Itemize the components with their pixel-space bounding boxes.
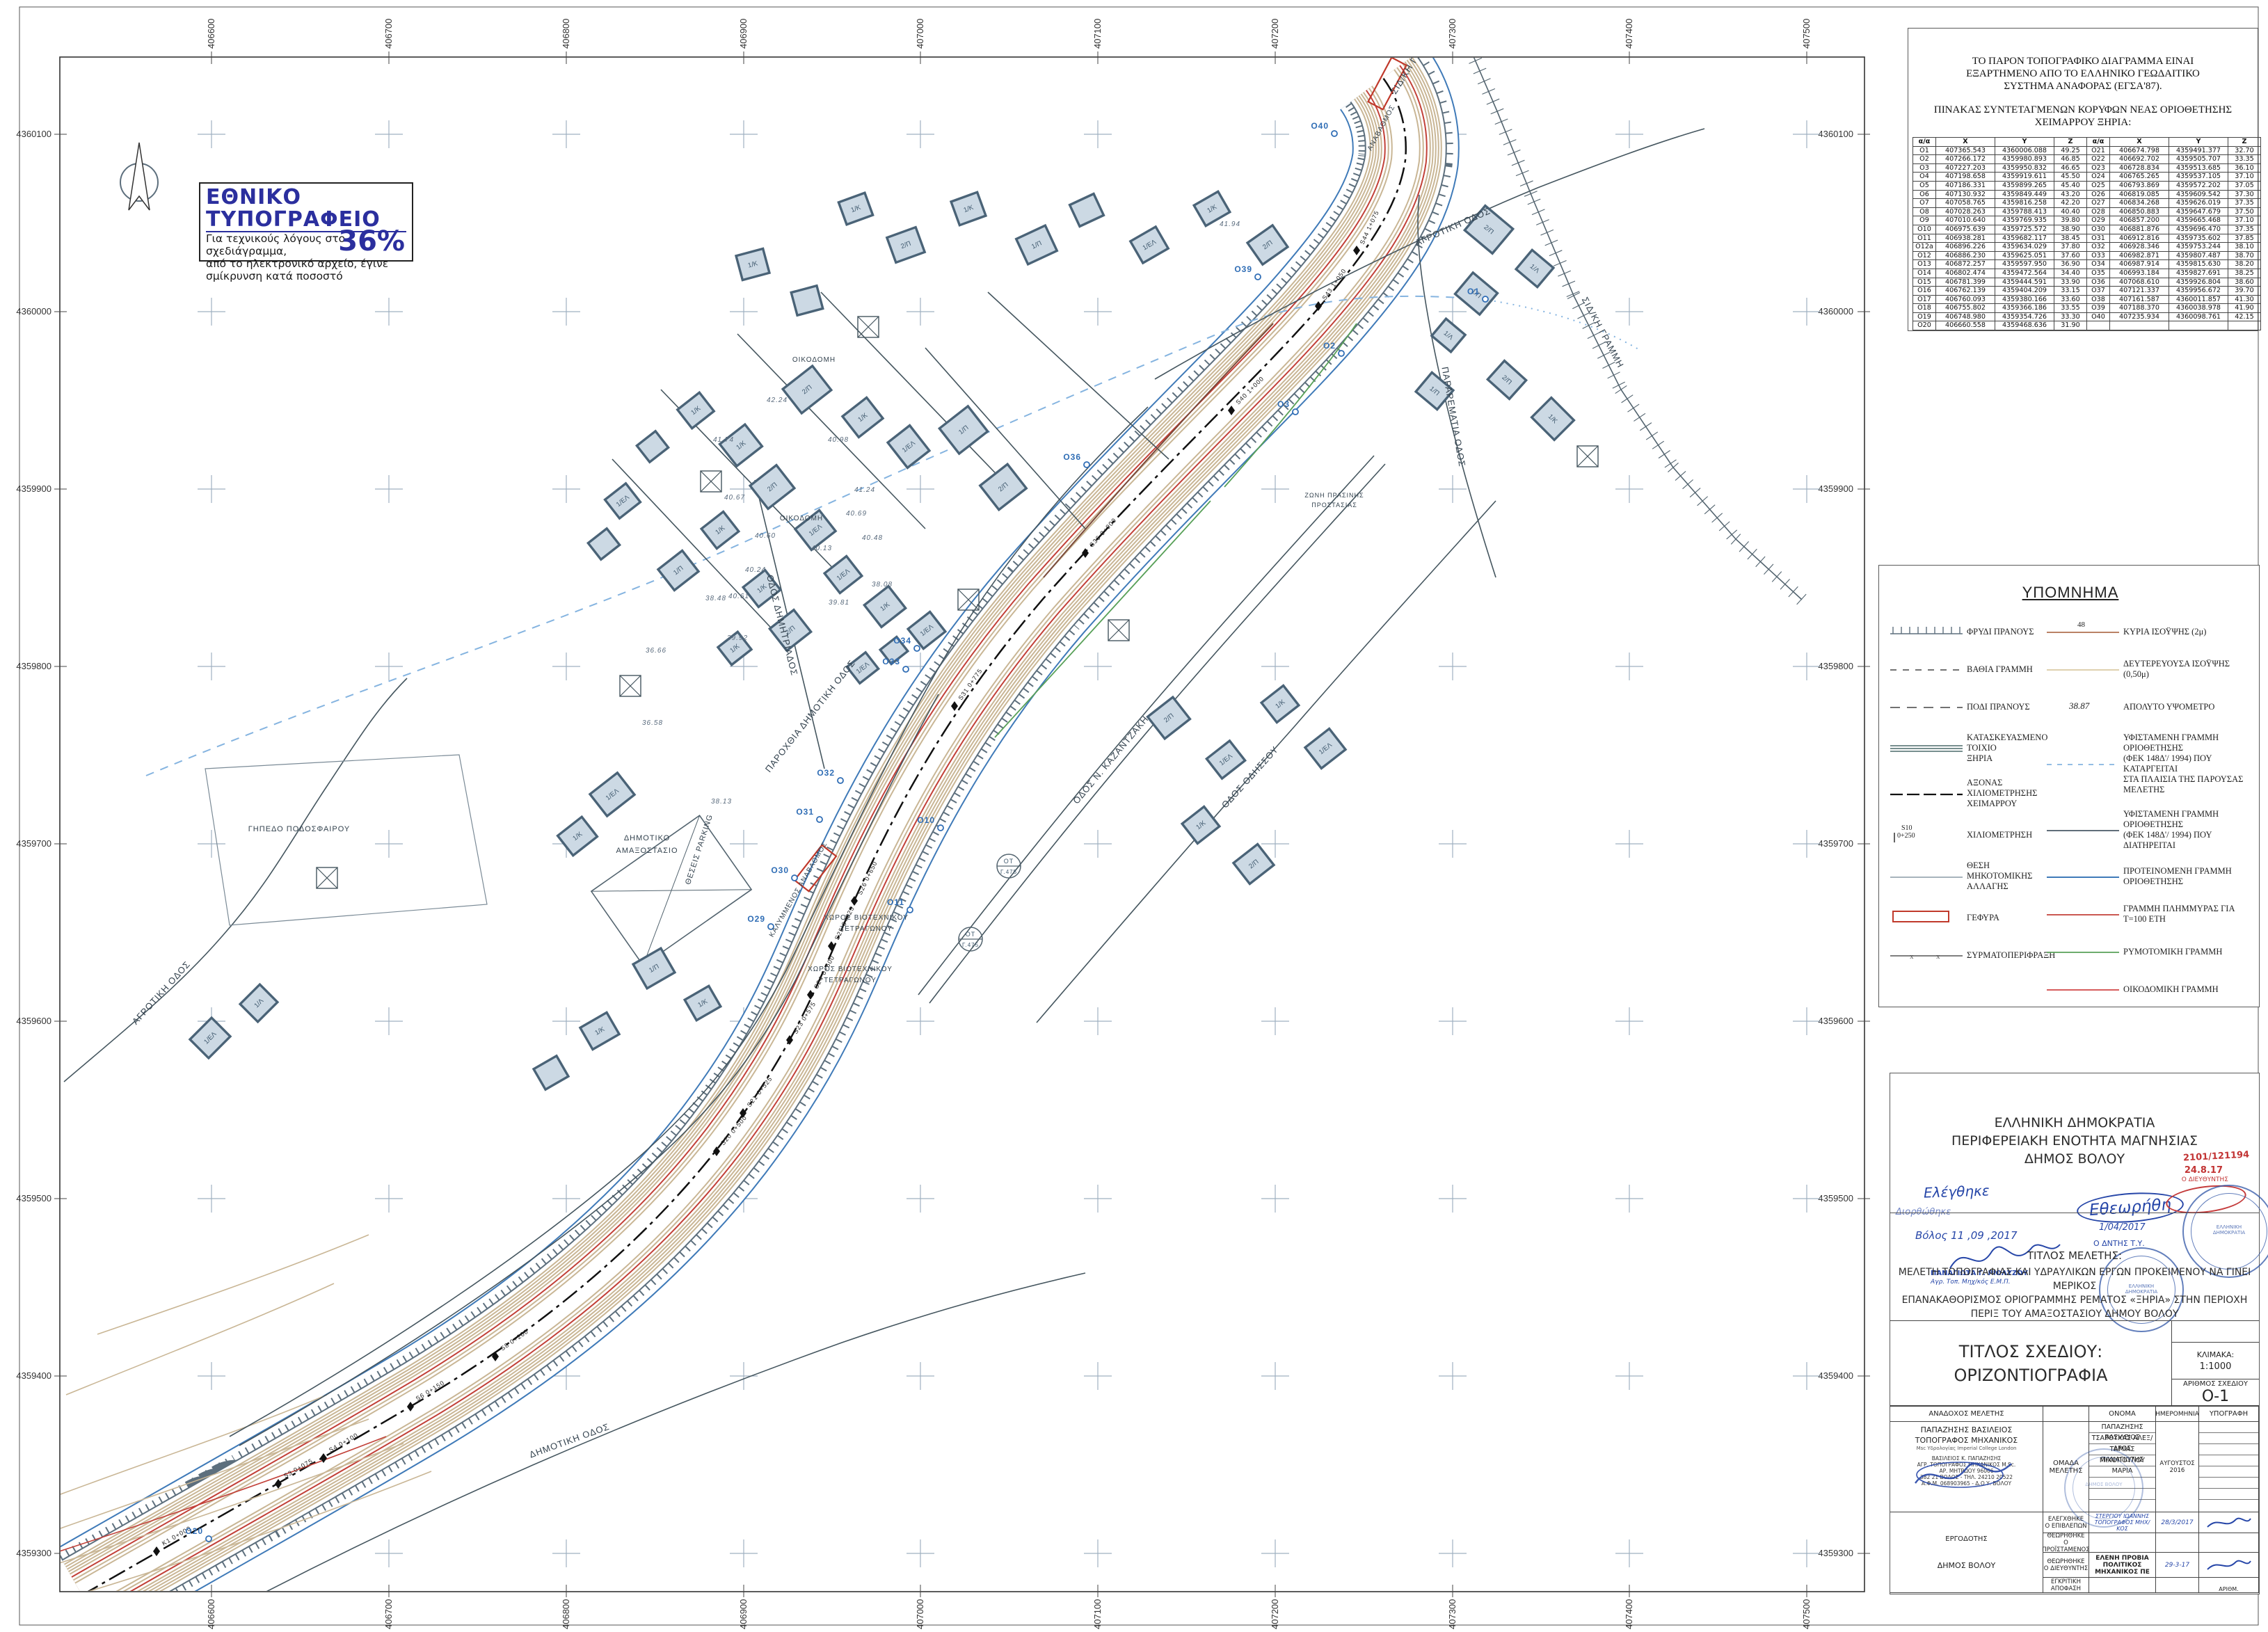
svg-text:38.87: 38.87	[2068, 701, 2090, 711]
map-label: ΓΗΠΕΔΟ ΠΟΔΟΣΦΑΙΡΟΥ	[248, 825, 350, 833]
map-text: 4359700	[1818, 838, 1853, 849]
map-label: ΠΑΡΑΡΕΜΑΤΙΑ ΟΔΟΣ	[1439, 366, 1467, 467]
svg-text:S10: S10	[1901, 824, 1912, 832]
approval-signature-cell: ΑΡΙΘΜ.	[2199, 1578, 2259, 1593]
red-date: 24.8.17	[2185, 1165, 2223, 1176]
approval-label-cell: ΘΕΩΡΗΘΗΚΕΟ ΠΡΟΪΣΤΑΜΕΝΟΣ	[2043, 1533, 2089, 1553]
map-label: 40.48	[862, 534, 883, 542]
map-text: 406900	[738, 19, 749, 49]
building-footprint: 1/ΕΛ	[908, 612, 945, 649]
map-label: ΤΕΤΡΑΓΩΝΟΥ	[840, 925, 893, 933]
legend-item: ΓΕΦΥΡΑ	[1889, 906, 2045, 929]
building-footprint: 1/Π	[658, 550, 698, 590]
coords-row: O8407028.2634359788.41340.40O28406850.88…	[1913, 207, 2261, 216]
building-footprint: 1/Κ	[951, 192, 986, 225]
building-footprint	[1070, 194, 1104, 227]
building-footprint: 1/ΕΛ	[190, 1018, 230, 1058]
legend-item: ΥΦΙΣΤΑΜΕΝΗ ΓΡΑΜΜΗ ΟΡΙΟΘΕΤΗΣΗΣ(ΦΕΚ 148Δ'/…	[2045, 733, 2244, 795]
map-label: 41.24	[854, 486, 875, 494]
building-footprint: 1/Λ	[1432, 319, 1465, 352]
approval-label-cell: ΘΕΩΡΗΘΗΚΕΟ ΔΙΕΥΘΥΝΤΗΣ	[2043, 1553, 2089, 1578]
legend-item: ΦΡΥΔΙ ΠΡΑΝΟΥΣ	[1889, 620, 2045, 643]
legend-item-label: ΒΑΘΙΑ ΓΡΑΜΜΗ	[1967, 664, 2033, 675]
coords-row: O6407130.9324359849.44943.20O26406819.08…	[1913, 190, 2261, 199]
map-text: 406700	[383, 19, 394, 49]
coords-row: O13406872.2574359597.95036.90O34406987.9…	[1913, 260, 2261, 269]
railway-tie	[1460, 38, 1473, 43]
map-label: 38.48	[705, 595, 726, 602]
coords-header-row: α/αXYZα/αXYZ	[1913, 138, 2261, 147]
boundary-point	[1483, 296, 1488, 302]
dash1-symbol-icon	[1889, 657, 1967, 678]
thin-symbol-icon	[1889, 865, 1967, 886]
name-header: ΟΝΟΜΑ	[2089, 1407, 2156, 1422]
building-footprint: 2/Π	[1487, 361, 1526, 399]
building-footprint: 1/Λ	[1516, 250, 1554, 287]
coords-row: O20406660.5584359468.63631.90	[1913, 321, 2261, 330]
coordinates-table: α/αXYZα/αXYZO1407365.5434360006.08849.25…	[1912, 137, 2261, 330]
coords-row: O4407198.6584359919.61145.50O24406765.26…	[1913, 173, 2261, 182]
legend-item: ΑΞΟΝΑΣΧΙΛΙΟΜΕΤΡΗΣΗΣΧΕΙΜΑΡΡΟΥ	[1889, 778, 2045, 809]
boundary-point	[817, 817, 822, 822]
building-footprint: 1/Κ	[720, 424, 762, 466]
building-footprint: 2/Π	[750, 465, 794, 509]
railway-tie	[1613, 382, 1625, 388]
drawing-sheet: 4066004066004067004067004068004068004069…	[0, 0, 2268, 1632]
org-line-2: ΠΕΡΙΦΕΡΕΙΑΚΗ ΕΝΟΤΗΤΑ ΜΑΓΝΗΣΙΑΣ	[1890, 1132, 2259, 1150]
drawing-title: ΟΡΙΖΟΝΤΙΟΓΡΑΦΙΑ	[1954, 1363, 2107, 1387]
map-label: 36.66	[646, 647, 666, 655]
round-stamp-faded: ΔΗΜΟΣ ΒΟΛΟΥ	[2064, 1448, 2143, 1528]
map-label: 40.69	[846, 510, 867, 518]
railway-tie	[1464, 48, 1477, 54]
divider	[1890, 1213, 2259, 1213]
drawing-number: Ο-1	[2202, 1388, 2229, 1405]
team-signatures-cell	[2199, 1422, 2259, 1512]
stamp-line3: σμίκρυνση κατά ποσοστό	[206, 270, 406, 282]
coords-row: O19406748.9804359354.72633.30O40407235.9…	[1913, 312, 2261, 321]
map-label: O1	[1467, 287, 1480, 296]
railway-tie	[1675, 471, 1686, 480]
building-footprint: 1/Κ	[864, 586, 905, 627]
map-text: 4359900	[1818, 483, 1853, 494]
legend-item: ΓΡΑΜΜΗ ΠΛΗΜΜΥΡΑΣ ΓΙΑ Τ=100 ΕΤΗ	[2045, 902, 2244, 926]
map-label: O33	[882, 657, 900, 666]
drawing-title-section: ΤΙΤΛΟΣ ΣΧΕΔΙΟΥ: ΟΡΙΖΟΝΤΙΟΓΡΑΦΙΑ ΚΛΙΜΑΚΑ:…	[1890, 1320, 2259, 1406]
study-label: ΤΙΤΛΟΣ ΜΕΛΕΤΗΣ:	[1890, 1249, 2259, 1263]
map-label: ΧΩΡΟΣ ΒΙΟΤΕΧΝΙΚΟΥ	[808, 966, 893, 973]
approval-signature-cell	[2199, 1512, 2259, 1533]
building-footprint: 1/Κ	[1182, 807, 1220, 844]
amaxostasio-shed-part	[591, 815, 751, 965]
building-footprint: 2/Π	[887, 227, 925, 263]
railway-tie	[1719, 522, 1730, 531]
map-label: 36.58	[642, 719, 663, 727]
map-text: 407300	[1447, 19, 1458, 49]
map-text: 4359300	[1818, 1548, 1853, 1558]
legend-item: S100+250ΧΙΛΙΟΜΕΤΡΗΣΗ	[1889, 823, 2045, 847]
svg-text:48: 48	[2077, 621, 2086, 629]
railway-tie	[1545, 240, 1558, 246]
building-rect	[637, 431, 668, 463]
fence-symbol-icon: xx	[1889, 943, 1967, 964]
legend-item-label: ΠΟΔΙ ΠΡΑΝΟΥΣ	[1967, 702, 2030, 712]
approval-date-cell	[2156, 1578, 2199, 1593]
boundary-point	[903, 666, 909, 672]
keep-symbol-icon	[2045, 818, 2123, 839]
boundary-point	[206, 1536, 211, 1542]
legend-item: ΚΑΤΑΣΚΕΥΑΣΜΕΝΟ ΤΟΙΧΙΟΞΗΡΙΑ	[1889, 733, 2045, 764]
map-label: ΟΔΟΣ Ν. ΚΑΖΑΝΤΖΑΚΗ	[1071, 714, 1151, 806]
building-footprint: 1/Π	[939, 406, 987, 454]
coordinates-panel: ΤΟ ΠΑΡΟΝ ΤΟΠΟΓΡΑΦΙΚΟ ΔΙΑΓΡΑΜΜΑ ΕΙΝΑΙΕΞΑΡ…	[1908, 28, 2258, 331]
building-footprint: 1/ΕΛ	[605, 483, 641, 518]
map-text: 4359900	[16, 483, 51, 494]
railway-tie	[1698, 497, 1708, 506]
map-label: 42.24	[767, 397, 788, 404]
building-footprint: 1/Κ	[1261, 686, 1299, 723]
ink-reviewed-date: 1/04/2017	[2099, 1222, 2146, 1233]
railway-tie	[1503, 140, 1517, 145]
map-label: O30	[771, 865, 789, 875]
building-footprint: 2/Π	[783, 366, 831, 413]
building-footprint: 1/ΕΛ	[1305, 728, 1345, 768]
legend-title: ΥΠΟΜΝΗΜΑ	[1889, 584, 2252, 602]
legend-item: ΠΡΟΤΕΙΝΟΜΕΝΗ ΓΡΑΜΜΗ ΟΡΙΟΘΕΤΗΣΗΣ	[2045, 865, 2244, 888]
elev-symbol-icon: 38.87	[2045, 695, 2123, 716]
railway-tie	[1491, 109, 1504, 114]
team-date-cell: ΑΥΓΟΥΣΤΟΣ 2016	[2156, 1422, 2199, 1512]
map-label: 40.24	[745, 566, 766, 574]
approval-name-cell	[2089, 1533, 2156, 1553]
map-label: 41.74	[713, 436, 734, 444]
map-label: ΑΜΑΞΟΣΤΑΣΙΟ	[616, 847, 678, 855]
coords-row: O3407227.2034359950.83246.65O23406728.83…	[1913, 163, 2261, 173]
building-footprint: 1/Π	[633, 948, 675, 989]
map-label: 41.94	[1220, 221, 1240, 228]
axis-symbol-icon	[1889, 782, 1967, 803]
olddash-symbol-icon	[2045, 752, 2123, 773]
employer-cell: ΕΡΓΟΔΟΤΗΣΔΗΜΟΣ ΒΟΛΟΥ	[1890, 1512, 2043, 1593]
railway-tie	[1558, 271, 1570, 276]
legend-item: ΔΕΥΤΕΡΕΥΟΥΣΑ ΙΣΟΫΨΗΣ (0,50μ)	[2045, 657, 2244, 681]
railway-tie	[1540, 230, 1553, 235]
railway-tie	[1690, 488, 1700, 497]
approvals-table: ΑΝΑΔΟΧΟΣ ΜΕΛΕΤΗΣΟΝΟΜΑΗΜΕΡΟΜΗΝΙΑΥΠΟΓΡΑΦΗΠ…	[1890, 1406, 2259, 1594]
frydi-symbol-icon	[1889, 620, 1967, 641]
svg-text:x: x	[1910, 952, 1914, 961]
approval-name-cell	[2089, 1578, 2156, 1593]
map-label: 40.98	[828, 436, 849, 444]
map-text: 406600	[206, 1599, 216, 1629]
map-label: O40	[1311, 121, 1329, 131]
railway-tie	[1499, 129, 1512, 135]
building-footprint: 2/Π	[1247, 225, 1288, 264]
coords-row: O1407365.5434360006.08849.25O21406674.79…	[1913, 146, 2261, 155]
map-label: 40.67	[724, 494, 745, 502]
map-text: 4359400	[1818, 1370, 1853, 1381]
railway-tie	[1524, 191, 1538, 197]
map-label: Γ.475	[1000, 869, 1017, 875]
building-footprint	[534, 1056, 568, 1089]
approval-name-cell: ΕΛΕΝΗ ΠΡΟΒΙΑ ΠΟΛΙΤΙΚΟΣ ΜΗΧΑΝΙΚΟΣ ΠΕ	[2089, 1553, 2156, 1578]
railway-tie	[1563, 281, 1575, 287]
contour-fan-line	[66, 1283, 334, 1395]
approval-label-cell: ΕΓΚΡΙΤΙΚΗΑΠΟΦΑΣΗ	[2043, 1578, 2089, 1593]
legend-item: ΠΟΔΙ ΠΡΑΝΟΥΣ	[1889, 695, 2045, 719]
map-label: O2	[1323, 341, 1336, 351]
legend-item: ΒΑΘΙΑ ΓΡΑΜΜΗ	[1889, 657, 2045, 681]
railway-tie	[1516, 170, 1529, 176]
map-label: ΟΤ	[1004, 858, 1014, 865]
map-text: 407200	[1270, 19, 1280, 49]
map-text: 407500	[1801, 19, 1812, 49]
building-footprint: 1/Κ	[558, 817, 598, 855]
legend-item-label: ΚΥΡΙΑ ΙΣΟΫΨΗΣ (2μ)	[2123, 627, 2206, 637]
map-text: 406900	[738, 1599, 749, 1629]
legend-item-label: ΘΕΣΗ ΜΗΚΟΤΟΜΙΚΗΣΑΛΛΑΓΗΣ	[1967, 861, 2045, 892]
coords-row: O12a406896.2264359634.02937.80O32406928.…	[1913, 243, 2261, 252]
building-footprint: 1/Κ	[701, 512, 739, 549]
railway-tie	[1683, 480, 1693, 489]
scale-label: ΚΛΙΜΑΚΑ:	[2197, 1350, 2234, 1359]
map-text: 407300	[1447, 1599, 1458, 1629]
building-footprint: 1/Κ	[838, 193, 872, 225]
map-label: O31	[796, 807, 814, 817]
north-arrow-icon	[129, 143, 150, 210]
building-footprint: 1/Π	[1016, 225, 1057, 264]
map-label: O32	[817, 768, 835, 778]
railway-tie	[1634, 413, 1645, 421]
legend-item: ΟΙΚΟΔΟΜΙΚΗ ΓΡΑΜΜΗ	[2045, 977, 2244, 1001]
building-footprint	[588, 529, 619, 560]
wall-symbol-icon	[1889, 737, 1967, 758]
coords-row: O11406938.2814359682.11738.45O31406912.8…	[1913, 234, 2261, 243]
map-text: 4360000	[16, 306, 51, 317]
boundary-point	[838, 778, 843, 783]
ink-checked: Ελέγθηκε	[1924, 1182, 1990, 1201]
building-footprint: 1/ΕΛ	[1206, 741, 1245, 778]
map-label: ΔΗΜΟΤΙΚΗ ΟΔΟΣ	[528, 1421, 611, 1460]
railway-tie	[1652, 441, 1664, 449]
map-label: 40.60	[755, 532, 776, 540]
boundary-point	[914, 646, 920, 651]
map-text: 4359700	[16, 838, 51, 849]
railway-tie	[1646, 432, 1658, 440]
map-text: 406600	[206, 19, 216, 49]
railway-tie	[1554, 261, 1566, 266]
reduction-stamp-box: ΕΘΝΙΚΟ ΤΥΠΟΓΡΑΦΕΙΟ Για τεχνικούς λόγους …	[199, 182, 413, 262]
road-line	[988, 292, 1169, 459]
legend-item-label: ΓΡΑΜΜΗ ΠΛΗΜΜΥΡΑΣ ΓΙΑ Τ=100 ΕΤΗ	[2123, 904, 2244, 925]
football-field-parcel	[205, 755, 487, 925]
legend-panel: ΥΠΟΜΝΗΜΑ ΦΡΥΔΙ ΠΡΑΝΟΥΣΒΑΘΙΑ ΓΡΑΜΜΗΠΟΔΙ Π…	[1878, 565, 2260, 1007]
map-text: 407200	[1270, 1599, 1280, 1629]
map-label: ΟΤ	[966, 931, 976, 938]
railway-tie	[1627, 404, 1639, 412]
legend-item-label: ΟΙΚΟΔΟΜΙΚΗ ΓΡΑΜΜΗ	[2123, 984, 2219, 995]
map-label: O29	[747, 914, 765, 924]
geodetic-note: ΤΟ ΠΑΡΟΝ ΤΟΠΟΓΡΑΦΙΚΟ ΔΙΑΓΡΑΜΜΑ ΕΙΝΑΙΕΞΑΡ…	[1912, 55, 2253, 93]
boundary-point	[1293, 409, 1298, 415]
map-label: ΑΓΡΟΤΙΚΗ ΟΔΟΣ	[130, 959, 193, 1026]
map-label: 39.92	[727, 634, 748, 642]
boundary-point	[1084, 462, 1089, 467]
map-label: 39.81	[829, 599, 849, 607]
map-label: O36	[1063, 452, 1081, 462]
boundary-point	[907, 907, 913, 913]
railway-line	[1467, 40, 1802, 600]
stamp-line2: από το ηλεκτρονικό αρχείο, έγινε	[206, 257, 406, 270]
building-footprint: 2/Π	[1233, 844, 1274, 883]
map-label: O11	[887, 897, 904, 907]
legend-item: 38.87ΑΠΟΛΥΤΟ ΥΨΟΜΕΤΡΟ	[2045, 695, 2244, 719]
green-symbol-icon	[2045, 940, 2123, 961]
building-footprint: 1/Κ	[678, 392, 714, 428]
drawing-number-label: ΑΡΙΘΜΟΣ ΣΧΕΔΙΟΥ	[2183, 1380, 2248, 1388]
map-label: O10	[917, 815, 935, 825]
building-footprint: 1/ΕΛ	[590, 773, 634, 816]
boundary-point	[1255, 274, 1261, 280]
legend-item-label: ΑΠΟΛΥΤΟ ΥΨΟΜΕΤΡΟ	[2123, 702, 2214, 712]
map-label: ΖΩΝΗ ΠΡΑΣΙΝΗΣ	[1304, 492, 1364, 499]
map-text: 407100	[1092, 1599, 1103, 1629]
building-footprint: 1/Κ	[736, 248, 769, 280]
dash2-symbol-icon	[1889, 695, 1967, 716]
map-text: 4359300	[16, 1548, 51, 1558]
bridge-symbol-icon	[1889, 906, 1967, 927]
map-label: O39	[1234, 264, 1252, 274]
legend-item: ΥΦΙΣΤΑΜΕΝΗ ΓΡΑΜΜΗ ΟΡΙΟΘΕΤΗΣΗΣ(ΦΕΚ 148Δ'/…	[2045, 809, 2244, 851]
map-label: ΘΕΣΕΙΣ PARKING	[684, 813, 714, 886]
map-label: Γ.475	[962, 942, 979, 948]
map-label: O3	[1277, 399, 1290, 409]
railway-tie	[1602, 362, 1615, 369]
study-title: ΜΕΛΕΤΗ ΤΟΠΟΓΡΑΦΙΑΣ ΚΑΙ ΥΔΡΑΥΛΙΚΩΝ ΕΡΓΩΝ …	[1890, 1265, 2259, 1321]
scale-value: 1:1000	[2200, 1361, 2232, 1372]
building-footprint: 2/Π	[980, 464, 1026, 509]
legend-item: ΡΥΜΟΤΟΜΙΚΗ ΓΡΑΜΜΗ	[2045, 940, 2244, 963]
building-footprint: 1/ΕΛ	[1131, 227, 1168, 263]
building-rect	[588, 529, 619, 560]
map-text: 4360100	[16, 129, 51, 139]
map-text: 407000	[915, 1599, 925, 1629]
map-label: ΠΡΟΣΤΑΣΙΑΣ	[1311, 502, 1357, 509]
railway-tie	[1615, 385, 1627, 393]
old-boundary-dotted	[1482, 299, 1638, 349]
legend-item: 48ΚΥΡΙΑ ΙΣΟΫΨΗΣ (2μ)	[2045, 620, 2244, 643]
railway-tie	[1622, 395, 1634, 403]
railway-tie	[1727, 530, 1737, 539]
map-label: ΧΩΡΟΣ ΒΙΟΤΕΧΝΙΚΟΥ	[824, 914, 909, 922]
railway-tie	[1487, 99, 1499, 104]
drawing-label: ΤΙΤΛΟΣ ΣΧΕΔΙΟΥ:	[1959, 1340, 2102, 1363]
coords-row: O2407266.1724359980.89346.85O22406692.70…	[1913, 155, 2261, 164]
contractor-cell: ΠΑΠΑΖΗΣΗΣ ΒΑΣΙΛΕΙΟΣΤΟΠΟΓΡΑΦΟΣ ΜΗΧΑΝΙΚΟΣM…	[1890, 1422, 2043, 1512]
legend-item-label: ΔΕΥΤΕΡΕΥΟΥΣΑ ΙΣΟΫΨΗΣ (0,50μ)	[2123, 659, 2244, 680]
legend-item: ΘΕΣΗ ΜΗΚΟΤΟΜΙΚΗΣΑΛΛΑΓΗΣ	[1889, 861, 2045, 892]
railway-tie	[1712, 513, 1723, 522]
map-label: ΟΙΚΟΔΟΜΗ	[780, 515, 823, 522]
coords-row: O18406755.8024359366.18633.55O39407188.3…	[1913, 304, 2261, 313]
map-text: 4359600	[16, 1016, 51, 1026]
coords-row: O7407058.7654359816.25842.20O27406834.26…	[1913, 199, 2261, 208]
railway-tie	[1483, 88, 1495, 94]
legend-item-label: ΓΕΦΥΡΑ	[1967, 913, 1999, 923]
railway-tie	[1495, 119, 1508, 125]
boundary-point	[792, 875, 797, 881]
date-header: ΗΜΕΡΟΜΗΝΙΑ	[2156, 1407, 2199, 1422]
map-text: 4359800	[16, 661, 51, 671]
map-text: 407500	[1801, 1599, 1812, 1629]
map-label: ΟΙΚΟΔΟΜΗ	[792, 356, 836, 364]
coords-row: O16406762.1394359404.20933.15O37407121.3…	[1913, 287, 2261, 296]
railway-tie	[1508, 150, 1521, 155]
map-text: 4359800	[1818, 661, 1853, 671]
study-title-section: ΤΙΤΛΟΣ ΜΕΛΕΤΗΣ: ΜΕΛΕΤΗ ΤΟΠΟΓΡΑΦΙΑΣ ΚΑΙ Υ…	[1890, 1249, 2259, 1321]
map-text: 407400	[1624, 19, 1634, 49]
legend-item-label: ΠΡΟΤΕΙΝΟΜΕΝΗ ΓΡΑΜΜΗ ΟΡΙΟΘΕΤΗΣΗΣ	[2123, 866, 2244, 887]
building-footprint: 1/Κ	[580, 1012, 619, 1049]
map-text: 4359600	[1818, 1016, 1853, 1026]
legend-item-label: ΧΙΛΙΟΜΕΤΡΗΣΗ	[1967, 830, 2032, 840]
svg-text:0+250: 0+250	[1897, 832, 1915, 840]
csec-symbol-icon	[2045, 657, 2123, 678]
railway-tie	[1659, 450, 1670, 458]
map-text: 406800	[561, 1599, 571, 1629]
map-label: ΣΙΔ/ΚΗ ΓΡΑΜΜΗ	[1580, 295, 1626, 369]
map-label: O20	[185, 1526, 203, 1536]
map-label: ΠΑΡΟΧΘΙΑ ΔΗΜΟΤΙΚΗ ΟΔΟΣ	[763, 658, 857, 774]
railway-tie	[1536, 220, 1549, 225]
signature-header: ΥΠΟΓΡΑΦΗ	[2199, 1407, 2259, 1422]
map-text: 406800	[561, 19, 571, 49]
railway-tie	[1640, 423, 1652, 431]
legend-item-label: ΥΦΙΣΤΑΜΕΝΗ ΓΡΑΜΜΗ ΟΡΙΟΘΕΤΗΣΗΣ(ΦΕΚ 148Δ'/…	[2123, 809, 2244, 851]
svg-text:x: x	[1936, 952, 1940, 961]
approval-date-cell: 29-3-17	[2156, 1553, 2199, 1578]
red-role: Ο ΔΙΕΥΘΥΝΤΗΣ	[2182, 1176, 2228, 1183]
building-rect	[791, 286, 823, 316]
boundary-point	[1332, 131, 1337, 136]
building-footprint: 1/Κ	[842, 397, 883, 437]
legend-item-label: ΡΥΜΟΤΟΜΙΚΗ ΓΡΑΜΜΗ	[2123, 947, 2222, 957]
contour-fan-line	[97, 1235, 369, 1334]
map-text: 407000	[915, 19, 925, 49]
map-frame	[60, 57, 1864, 1592]
approval-date-cell: 28/3/2017	[2156, 1512, 2199, 1533]
railway-tie	[1608, 372, 1620, 378]
railway-tie	[1478, 79, 1490, 84]
title-block: ΕΛΛΗΝΙΚΗ ΔΗΜΟΚΡΑΤΙΑ ΠΕΡΙΦΕΡΕΙΑΚΗ ΕΝΟΤΗΤΑ…	[1890, 1073, 2260, 1594]
map-text: 407400	[1624, 1599, 1634, 1629]
legend-item-label: ΑΞΟΝΑΣΧΙΛΙΟΜΕΤΡΗΣΗΣΧΕΙΜΑΡΡΟΥ	[1967, 778, 2037, 809]
railway-tie	[1469, 58, 1481, 63]
coords-row: O5407186.3314359899.26545.40O25406793.86…	[1913, 181, 2261, 190]
map-text: 406700	[383, 1599, 394, 1629]
building-footprint	[637, 431, 668, 463]
approval-signature-cell	[2199, 1553, 2259, 1578]
boundary-point	[1339, 351, 1344, 356]
ink-director-ty: Ο ΔΝΤΗΣ Τ.Υ.	[2093, 1239, 2145, 1248]
spacer	[2043, 1407, 2089, 1422]
legend-item-label: ΥΦΙΣΤΑΜΕΝΗ ΓΡΑΜΜΗ ΟΡΙΟΘΕΤΗΣΗΣ(ΦΕΚ 148Δ'/…	[2123, 733, 2244, 795]
coords-row: O10406975.6394359725.57238.90O30406881.8…	[1913, 225, 2261, 234]
map-label: 40.13	[811, 545, 832, 552]
map-text: 407100	[1092, 19, 1103, 49]
legend-item-label: ΦΡΥΔΙ ΠΡΑΝΟΥΣ	[1967, 627, 2034, 637]
railway-tie	[1532, 209, 1544, 215]
